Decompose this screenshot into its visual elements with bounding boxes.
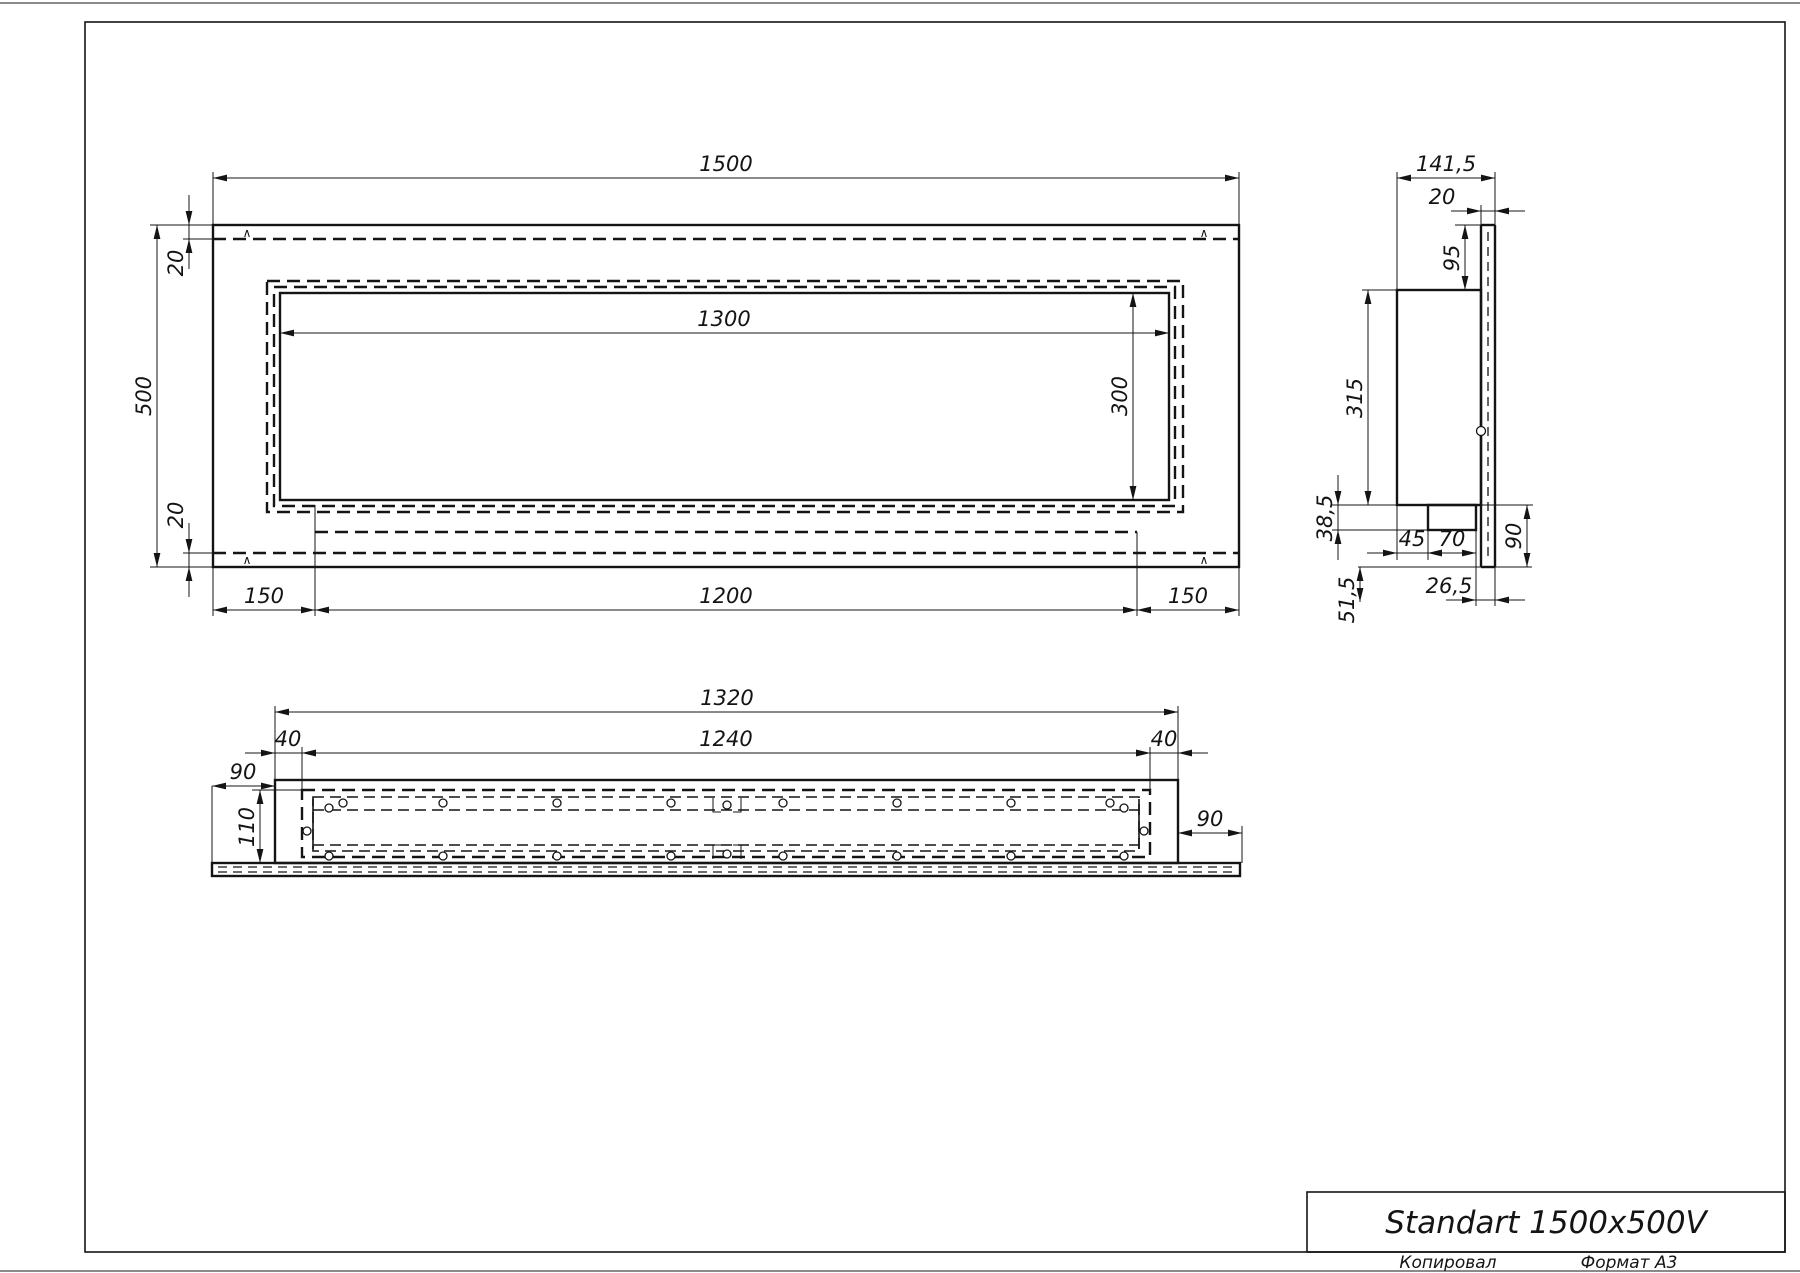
- mounting-hole: [439, 852, 447, 860]
- dim-side-tray-offset: 45: [1399, 527, 1426, 551]
- mounting-hole: [1120, 804, 1128, 812]
- side-hole: [1477, 427, 1486, 436]
- dim-arrow: [280, 330, 294, 337]
- dim-side-front-gap: 20: [1429, 185, 1456, 209]
- dim-arrow: [1428, 550, 1442, 557]
- dim-arrow: [1365, 491, 1372, 505]
- dim-arrow: [301, 607, 315, 614]
- dim-bottom-flange-right: 90: [1197, 807, 1224, 831]
- dim-front-width: 1500: [699, 152, 752, 176]
- dim-arrow: [275, 709, 289, 716]
- mounting-hole: [325, 852, 333, 860]
- dim-bottom-body-width: 1320: [700, 686, 753, 710]
- dim-arrow: [1130, 486, 1137, 500]
- dim-front-top-gap: 20: [164, 250, 188, 277]
- mounting-hole: [893, 852, 901, 860]
- mounting-hole: [553, 852, 561, 860]
- bottom-inner-frame-hidden: [302, 790, 1150, 857]
- dim-side-below-edge: 51,5: [1335, 577, 1359, 624]
- drawing-canvas: ∧ ∧ ∧ ∧ 1500 500 20 20 1300 300: [0, 0, 1800, 1273]
- mounting-hole: [303, 827, 311, 835]
- section-mark: ∧: [243, 553, 252, 567]
- dim-arrow: [1228, 830, 1242, 837]
- dim-arrow: [1481, 175, 1495, 182]
- dim-front-opening-width: 1300: [697, 307, 750, 331]
- format-label: Формат А3: [1581, 1253, 1678, 1273]
- dim-arrow: [1524, 553, 1531, 567]
- section-mark: ∧: [243, 226, 252, 240]
- front-outer-body: [213, 225, 1239, 567]
- dim-front-opening-height: 300: [1108, 376, 1132, 416]
- mounting-hole: [779, 799, 787, 807]
- dim-arrow: [1155, 330, 1169, 337]
- drawing-frame: [85, 22, 1785, 1252]
- dim-arrow: [154, 225, 161, 239]
- dim-arrow: [1365, 290, 1372, 304]
- mounting-hole: [553, 799, 561, 807]
- title-block: Standart 1500x500V Копировал Формат А3: [1307, 1192, 1785, 1273]
- drawing-title: Standart 1500x500V: [1385, 1205, 1709, 1241]
- dim-arrow: [1462, 225, 1469, 239]
- section-mark: ∧: [1200, 553, 1209, 567]
- dim-front-bottom-gap: 20: [164, 502, 188, 529]
- dim-side-top-flange: 95: [1440, 245, 1464, 272]
- mounting-hole: [1007, 852, 1015, 860]
- dim-arrow: [1137, 607, 1151, 614]
- dim-arrow: [315, 607, 329, 614]
- bottom-front-plate: [212, 863, 1240, 876]
- mounting-hole: [893, 799, 901, 807]
- dim-arrow: [213, 607, 227, 614]
- dim-arrow: [213, 175, 227, 182]
- dim-arrow: [1357, 567, 1364, 581]
- dim-arrow: [1397, 175, 1411, 182]
- mounting-hole: [779, 852, 787, 860]
- section-mark: ∧: [1200, 226, 1209, 240]
- copied-by-label: Копировал: [1399, 1253, 1496, 1273]
- dim-arrow: [1123, 607, 1137, 614]
- dim-arrow: [1462, 276, 1469, 290]
- dim-arrow: [257, 849, 264, 863]
- dim-bottom-flange-left: 90: [230, 760, 257, 784]
- dim-bottom-gap-right: 40: [1151, 727, 1178, 751]
- dim-front-bottom-center: 1200: [699, 584, 752, 608]
- dim-arrow: [1164, 709, 1178, 716]
- dim-bottom-opening-width: 1240: [699, 727, 752, 751]
- mounting-hole: [339, 799, 347, 807]
- mounting-hole: [723, 850, 731, 858]
- dim-bottom-depth: 110: [235, 807, 259, 847]
- drawing-sheet: ∧ ∧ ∧ ∧ 1500 500 20 20 1300 300: [0, 0, 1800, 1273]
- dim-side-depth: 141,5: [1416, 152, 1476, 176]
- dim-side-tray-to-edge: 26,5: [1426, 574, 1473, 598]
- side-view: 141,5 20 95 315 38,5 45 70 90 26,5: [1313, 152, 1533, 623]
- dim-arrow: [257, 790, 264, 804]
- side-body: [1397, 290, 1481, 505]
- dim-bottom-gap-left: 40: [275, 727, 302, 751]
- mounting-hole: [325, 804, 333, 812]
- mounting-hole: [723, 801, 731, 809]
- dim-front-bottom-right: 150: [1168, 584, 1208, 608]
- mounting-hole: [439, 799, 447, 807]
- mounting-hole: [1140, 827, 1148, 835]
- mounting-hole: [1120, 852, 1128, 860]
- dim-side-bottom-flange: 90: [1502, 523, 1526, 550]
- dim-front-bottom-left: 150: [244, 584, 284, 608]
- dim-arrow: [154, 553, 161, 567]
- dim-front-height: 500: [132, 376, 156, 416]
- dim-arrow: [261, 783, 275, 790]
- dim-arrow: [212, 783, 226, 790]
- dim-arrow: [1524, 505, 1531, 519]
- dim-side-tray-width: 70: [1439, 527, 1466, 551]
- dim-arrow: [1130, 293, 1137, 307]
- dim-side-body-height: 315: [1343, 378, 1367, 418]
- dim-arrow: [1178, 830, 1192, 837]
- bottom-view: 1320 1240 40 40 90 110 90: [212, 686, 1242, 876]
- front-view: ∧ ∧ ∧ ∧ 1500 500 20 20 1300 300: [132, 152, 1239, 616]
- mounting-hole: [1106, 799, 1114, 807]
- dim-arrow: [1462, 550, 1476, 557]
- dim-arrow: [1225, 175, 1239, 182]
- mounting-hole: [1007, 799, 1015, 807]
- mounting-hole: [667, 852, 675, 860]
- dim-arrow: [1225, 607, 1239, 614]
- mounting-hole: [667, 799, 675, 807]
- dim-side-tray-drop: 38,5: [1313, 495, 1337, 542]
